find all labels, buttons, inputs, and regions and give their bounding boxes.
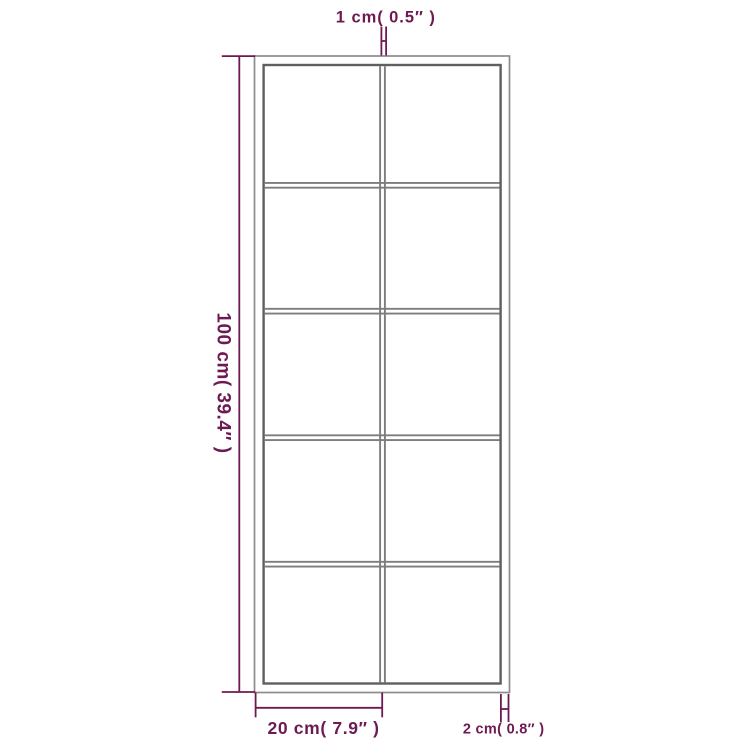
svg-text:20 cm( 7.9″ ): 20 cm( 7.9″ ): [268, 718, 380, 738]
svg-text:2 cm( 0.8″ ): 2 cm( 0.8″ ): [463, 721, 544, 737]
svg-text:100 cm( 39.4″ ): 100 cm( 39.4″ ): [213, 312, 234, 453]
svg-text:1 cm( 0.5″ ): 1 cm( 0.5″ ): [336, 9, 436, 27]
